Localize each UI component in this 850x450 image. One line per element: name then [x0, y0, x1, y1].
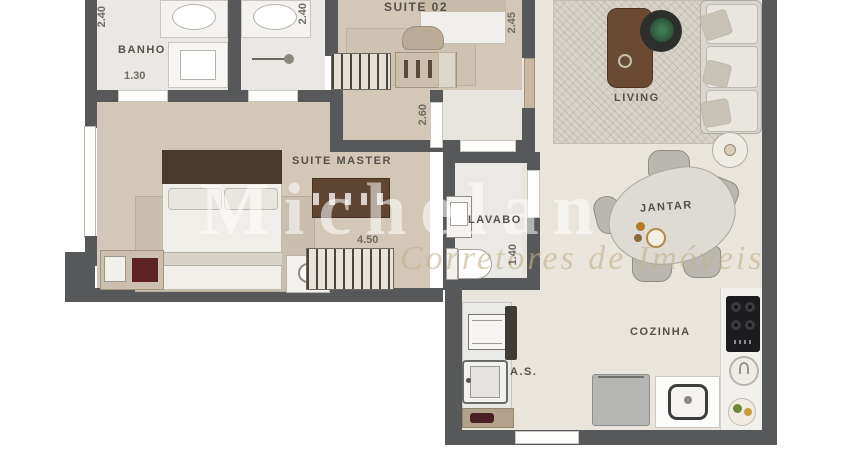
bath2-sink — [253, 4, 297, 30]
living-plant — [650, 18, 674, 42]
suite02-bed-footboard — [402, 26, 444, 50]
room-label-as: A.S. — [510, 366, 537, 378]
suite02-door-threshold — [460, 140, 516, 152]
living-coffee-table-decor — [618, 54, 632, 68]
banho-divider-wall — [228, 0, 241, 90]
kitchen-decor-herbs — [733, 404, 742, 413]
kitchen-decor-fruit — [744, 408, 752, 416]
outer-wall-bottom — [445, 430, 777, 445]
master-window — [84, 126, 96, 238]
banho-door-threshold — [118, 90, 168, 102]
kitchen-cooktop — [726, 296, 760, 352]
master-door-threshold — [430, 102, 443, 148]
dim-lavabo-width: 1.40 — [507, 244, 519, 265]
service-bottle — [470, 413, 494, 423]
suite02-east-wall-lower — [522, 108, 535, 152]
service-door-leaf — [505, 306, 517, 360]
suite02-sliding-door — [524, 58, 535, 110]
room-label-suite02: SUITE 02 — [384, 0, 448, 14]
service-tank-lines — [472, 320, 502, 344]
room-label-banho: BANHO — [118, 44, 166, 56]
dim-bath2-depth: 2.40 — [297, 3, 309, 24]
washing-machine-lid — [470, 366, 500, 398]
dim-banho-width: 1.30 — [124, 70, 145, 82]
master-bed-runner — [162, 252, 282, 266]
suite02-east-wall — [522, 0, 535, 58]
dim-banho-depth: 2.40 — [96, 6, 108, 27]
master-bench-art — [104, 256, 126, 282]
room-label-living: LIVING — [614, 92, 660, 104]
service-west-wall — [445, 290, 462, 445]
banho-sink — [172, 4, 216, 30]
balcony-door — [515, 431, 579, 444]
dim-hall-depth: 2.60 — [417, 104, 429, 125]
washing-machine-dot — [466, 378, 471, 383]
bath2-shower-drain — [284, 54, 294, 64]
floor-plan: Michelan Corretores de Imóveis BANHO SUI… — [0, 0, 850, 450]
kitchen-fridge-handle — [598, 376, 644, 378]
bath2-door-threshold — [248, 90, 298, 102]
room-label-suite-master: SUITE MASTER — [292, 155, 392, 167]
lavabo-north-wall — [443, 152, 540, 163]
dining-table-bowl — [636, 222, 645, 231]
kitchen-fridge — [592, 374, 650, 426]
dim-master-width: 4.50 — [357, 234, 378, 246]
bath2-shower-faucet — [252, 58, 286, 60]
kitchen-sink-faucet — [739, 362, 749, 374]
suite02-wall-detail — [438, 52, 456, 88]
room-label-cozinha: COZINHA — [630, 326, 691, 338]
suite02-closet-rack — [331, 53, 391, 90]
living-lamp — [724, 144, 736, 156]
dim-suite02-depth: 2.45 — [506, 12, 518, 33]
watermark-tagline: Corretores de Imóveis — [400, 240, 765, 278]
sofa-pillow-3 — [700, 98, 732, 128]
banho-shower-tray — [180, 50, 216, 80]
master-bench-cushion — [132, 258, 158, 282]
bath2-suite02-wall — [325, 0, 338, 56]
room-label-lavabo: LAVABO — [468, 214, 522, 226]
master-closet-rack — [306, 248, 394, 290]
outer-wall-right — [762, 0, 777, 445]
kitchen-square-sink-faucet — [684, 396, 692, 404]
